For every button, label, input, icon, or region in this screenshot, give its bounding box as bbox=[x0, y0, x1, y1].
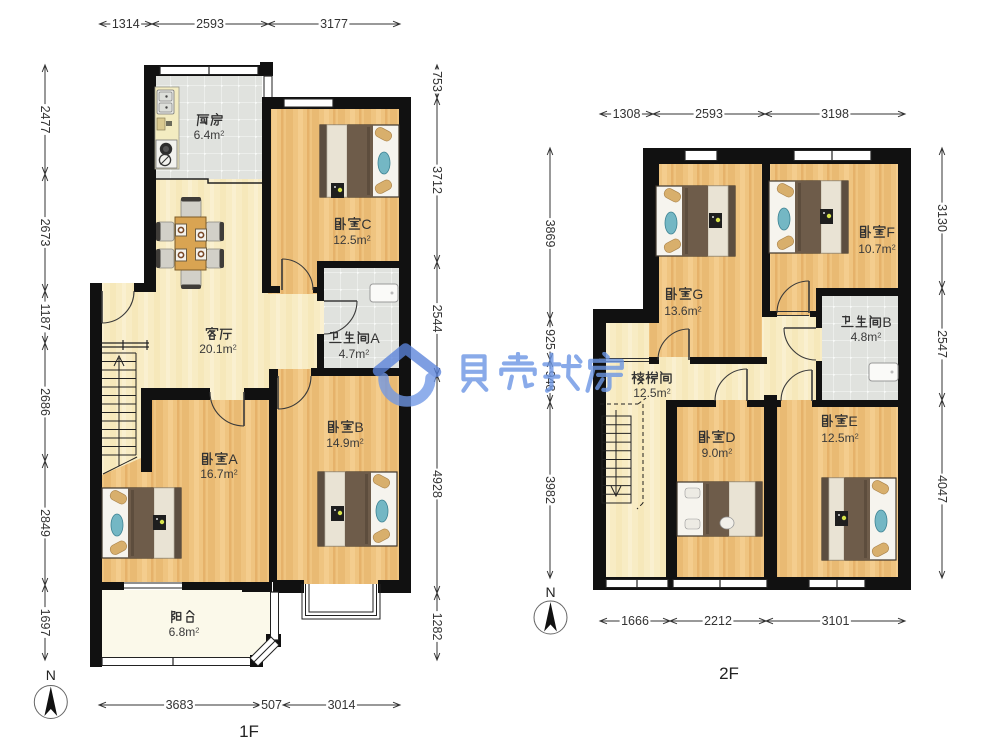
svg-text:2212: 2212 bbox=[704, 614, 732, 628]
svg-text:2477: 2477 bbox=[38, 106, 52, 134]
svg-text:4047: 4047 bbox=[935, 475, 949, 503]
svg-text:4928: 4928 bbox=[430, 470, 444, 498]
svg-text:B: B bbox=[882, 314, 891, 330]
svg-text:507: 507 bbox=[261, 698, 282, 712]
svg-text:16.7m2: 16.7m2 bbox=[200, 467, 237, 481]
svg-text:10.7m2: 10.7m2 bbox=[858, 242, 895, 256]
svg-text:2849: 2849 bbox=[38, 509, 52, 537]
svg-text:E: E bbox=[848, 413, 857, 429]
svg-text:1697: 1697 bbox=[38, 609, 52, 637]
svg-text:3101: 3101 bbox=[822, 614, 850, 628]
svg-text:F: F bbox=[886, 224, 895, 240]
svg-text:G: G bbox=[692, 286, 703, 302]
svg-text:2F: 2F bbox=[719, 664, 739, 683]
svg-text:2593: 2593 bbox=[695, 107, 723, 121]
svg-text:14.9m2: 14.9m2 bbox=[326, 436, 363, 450]
svg-text:A: A bbox=[228, 451, 238, 467]
svg-text:2686: 2686 bbox=[38, 388, 52, 416]
svg-text:2593: 2593 bbox=[196, 17, 224, 31]
svg-text:2673: 2673 bbox=[38, 219, 52, 247]
svg-text:1666: 1666 bbox=[621, 614, 649, 628]
svg-text:9.0m2: 9.0m2 bbox=[702, 446, 733, 460]
svg-text:N: N bbox=[545, 584, 555, 600]
svg-text:2547: 2547 bbox=[935, 330, 949, 358]
svg-text:3198: 3198 bbox=[821, 107, 849, 121]
svg-text:6.4m2: 6.4m2 bbox=[194, 128, 225, 142]
svg-text:1282: 1282 bbox=[430, 613, 444, 641]
svg-text:3014: 3014 bbox=[328, 698, 356, 712]
svg-text:1308: 1308 bbox=[613, 107, 641, 121]
svg-text:A: A bbox=[370, 330, 380, 346]
svg-text:12.5m2: 12.5m2 bbox=[633, 386, 670, 400]
svg-text:12.5m2: 12.5m2 bbox=[333, 233, 370, 247]
svg-text:1314: 1314 bbox=[112, 17, 140, 31]
svg-text:4.8m2: 4.8m2 bbox=[851, 330, 882, 344]
svg-text:3869: 3869 bbox=[543, 220, 557, 248]
svg-text:20.1m2: 20.1m2 bbox=[199, 342, 236, 356]
svg-text:12.5m2: 12.5m2 bbox=[821, 431, 858, 445]
svg-text:6.8m2: 6.8m2 bbox=[169, 625, 200, 639]
svg-text:3712: 3712 bbox=[430, 166, 444, 194]
svg-text:C: C bbox=[361, 216, 371, 232]
svg-text:B: B bbox=[354, 419, 363, 435]
svg-text:3177: 3177 bbox=[320, 17, 348, 31]
svg-text:3130: 3130 bbox=[935, 204, 949, 232]
svg-text:N: N bbox=[46, 667, 56, 683]
svg-text:1F: 1F bbox=[239, 722, 259, 741]
svg-text:753: 753 bbox=[430, 71, 444, 92]
svg-text:3982: 3982 bbox=[543, 476, 557, 504]
svg-text:13.6m2: 13.6m2 bbox=[664, 304, 701, 318]
svg-text:3683: 3683 bbox=[166, 698, 194, 712]
svg-text:925: 925 bbox=[543, 329, 557, 350]
svg-text:2544: 2544 bbox=[430, 305, 444, 333]
svg-text:D: D bbox=[725, 429, 735, 445]
svg-text:1187: 1187 bbox=[38, 304, 52, 331]
svg-text:4.7m2: 4.7m2 bbox=[339, 347, 370, 361]
